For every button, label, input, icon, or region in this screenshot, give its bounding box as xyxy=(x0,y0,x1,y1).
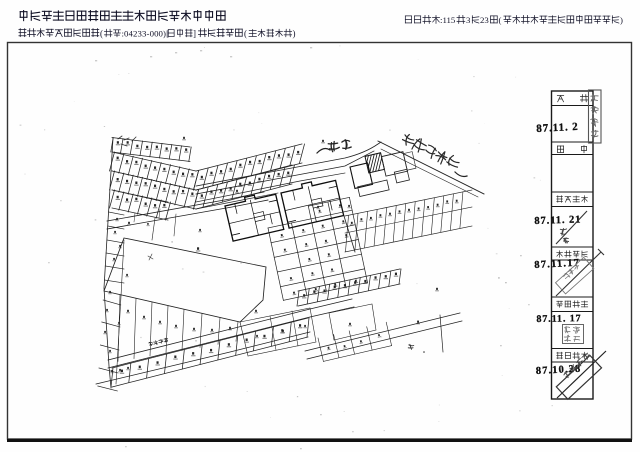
svg-text:87.11. 2: 87.11. 2 xyxy=(536,121,579,135)
svg-text:87.11. 17: 87.11. 17 xyxy=(536,313,581,325)
svg-text::04233-000)[: :04233-000)[ xyxy=(122,28,170,38)
svg-text:(: ( xyxy=(499,15,502,25)
svg-text:): ) xyxy=(620,15,623,25)
svg-text::115: :115 xyxy=(440,15,456,25)
svg-text:3: 3 xyxy=(466,15,471,25)
svg-text:): ) xyxy=(293,29,296,39)
svg-text:23: 23 xyxy=(480,15,489,25)
svg-text:]: ] xyxy=(193,28,196,38)
svg-text:(: ( xyxy=(100,29,103,39)
svg-text:(: ( xyxy=(244,29,247,39)
